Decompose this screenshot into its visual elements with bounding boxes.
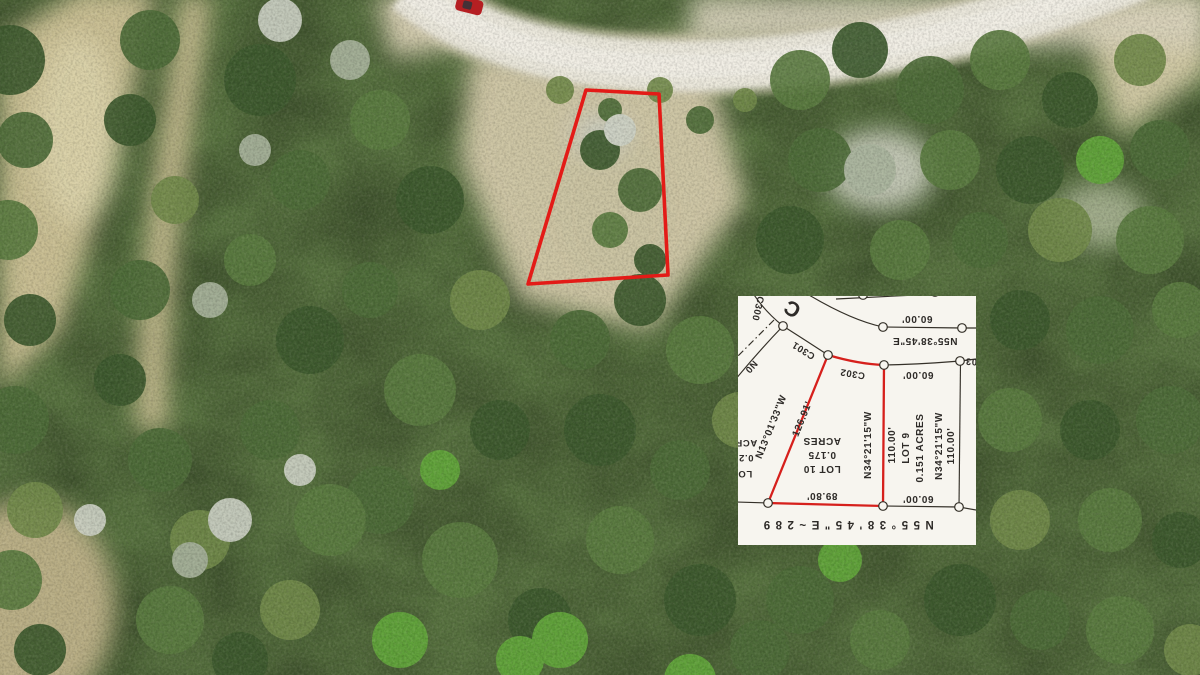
listing-aerial-screenshot: C C300 C301 C302 C303 60.00' 60.00' 60.0… — [0, 0, 1200, 675]
svg-text:LOT 9: LOT 9 — [901, 432, 912, 463]
lot10-east-bearing: N34°21'15"W — [863, 411, 874, 479]
lot10-label: LOT 10 0.175 ACRES — [803, 435, 841, 474]
lot9-east-bearing: N34°21'15"W — [934, 412, 945, 480]
svg-text:0.151 ACRES: 0.151 ACRES — [915, 413, 926, 482]
svg-text:0.175: 0.175 — [808, 449, 836, 460]
svg-text:ACRES: ACRES — [803, 435, 841, 446]
curve-label-c302: C302 — [839, 366, 866, 381]
adjacent-lot-fragment-3: LO — [738, 468, 752, 479]
adjacent-lot-fragment-2: 0.2 — [738, 452, 753, 463]
lot10-west-dist: 126.91' — [791, 400, 815, 439]
lot10-west-bearing: N13°01'33"W — [754, 394, 790, 461]
lot9-frontage-dist: 60.00' — [902, 369, 933, 380]
lot9-south-dist: 60.00' — [902, 493, 933, 504]
lot10-east-dist: 110.00' — [887, 427, 898, 464]
curve-label-c301: C301 — [790, 339, 817, 362]
adjacent-lot-fragment-1: ACR — [738, 437, 757, 448]
side-road-bearing: N0 — [742, 358, 759, 375]
top-cut-dist-left: 60.00' — [858, 296, 889, 297]
curve-label-c300: C300 — [749, 296, 765, 322]
aerial-photo — [0, 0, 1200, 675]
plat-map-inset: C C300 C301 C302 C303 60.00' 60.00' 60.0… — [738, 296, 976, 545]
south-line-label: N55°38'45"E~289 — [758, 518, 934, 530]
lot10-south-dist: 89.80' — [806, 490, 837, 501]
lot9-label: LOT 9 0.151 ACRES — [901, 413, 926, 482]
rear-line-bearing: N55°38'45"E — [893, 335, 958, 346]
rear-line-dist: 60.00' — [901, 313, 932, 324]
plat-drawing: C C300 C301 C302 C303 60.00' 60.00' 60.0… — [738, 296, 976, 545]
svg-text:LOT 10: LOT 10 — [803, 463, 841, 474]
curve-label-c303: C303 — [965, 355, 976, 367]
lot9-east-dist: 110.00' — [946, 428, 957, 465]
street-name-letter: C — [780, 296, 805, 322]
